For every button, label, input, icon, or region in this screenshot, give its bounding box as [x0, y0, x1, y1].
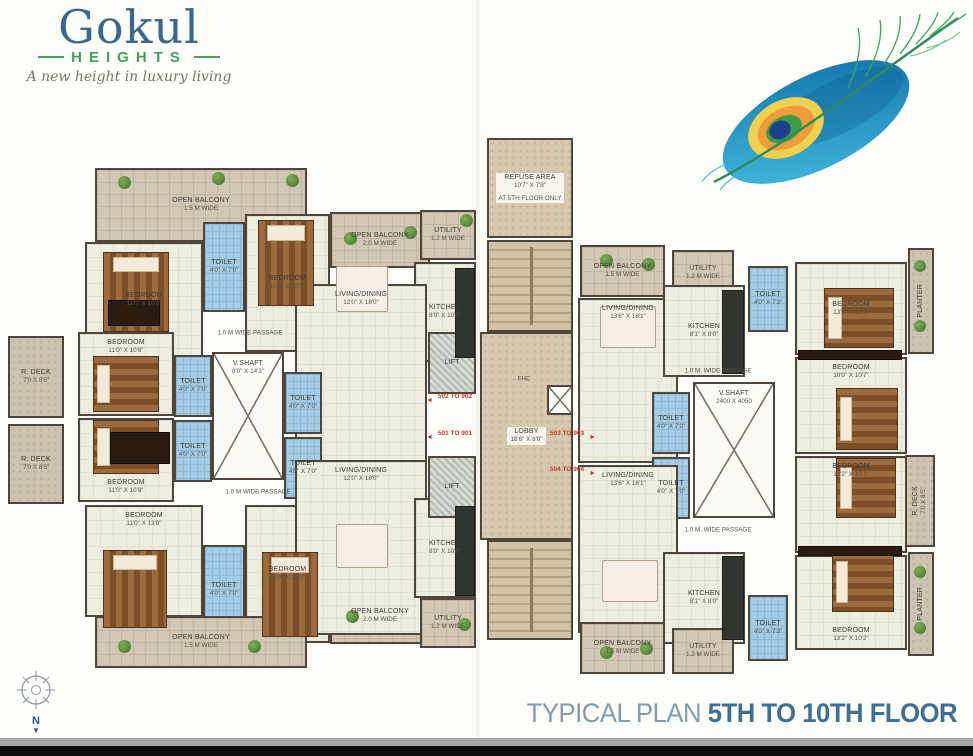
floor-plan-page: OPEN BALCONY1.5 M WIDEBEDROOM11'0" X 10'… [0, 0, 973, 756]
room-dimensions: 4'0" X 7'0" [179, 452, 208, 459]
room-label: TOILET4'0" X 7'0" [179, 443, 208, 459]
room-label: UTILITY1.2 M WIDE [431, 615, 465, 631]
room-v-shaft: V.SHAFT8'0" X 14'3" [212, 352, 284, 480]
room-name: OPEN BALCONY [172, 197, 230, 205]
room-name: BEDROOM [832, 301, 870, 309]
room-name: TOILET [657, 415, 686, 423]
room-dimensions: 11'0" X 10'0" [125, 301, 163, 308]
flat-number-label: 504 TO 904 [549, 466, 585, 474]
flat-number-label: 502 TO 902 [437, 393, 473, 401]
room-toilet: TOILET4'0" X 7'3" [748, 266, 788, 332]
bed-icon [262, 552, 318, 637]
room-dimensions: 10'0" X 13'0" [269, 575, 307, 582]
room-label: OPEN BALCONY2.0 M WIDE [351, 608, 409, 624]
room-label: OPEN BALCONY1.5 M WIDE [594, 263, 652, 279]
room-name: TOILET [754, 291, 783, 299]
plan-title-regular: TYPICAL PLAN [527, 698, 701, 728]
room-name: KITCHEN [688, 590, 720, 598]
room-name: PLANTER [917, 284, 925, 318]
room-label: BEDROOM13'2" X 10'2" [832, 627, 870, 643]
room-dimensions: 1.2 M WIDE [431, 624, 465, 631]
counter-icon [722, 556, 744, 640]
room-label: KITCHEN8'1" X 8'0" [688, 323, 720, 339]
plant-icon [914, 260, 926, 272]
room-dimensions: 12'0" X 18'0" [335, 476, 387, 483]
room-label: BEDROOM10'0" X 12'0" [269, 275, 307, 291]
room-dimensions: 13'6" X 18'1" [602, 481, 654, 488]
passage-label: 1.0 M. WIDE PASSAGE [684, 368, 751, 375]
room-open-balcony: OPEN BALCONY1.5 M WIDE [580, 245, 665, 297]
plan-title: TYPICAL PLAN5TH TO 10TH FLOOR [527, 698, 957, 729]
room-toilet: TOILET4'0" X 7'0" [174, 420, 212, 482]
counter-icon [722, 290, 744, 374]
room-shaft [547, 385, 573, 415]
room-name: BEDROOM [832, 627, 870, 635]
room-name: UTILITY [431, 615, 465, 623]
passage-label: 1.0 M WIDE PASSAGE [217, 330, 282, 337]
room-r-deck: R. DECK7'0 X 8'5" [8, 336, 64, 418]
room-dimensions: 12'0" X 18'0" [335, 300, 387, 307]
room-label: PLANTER [917, 587, 925, 621]
room-r-deck: R. DECK7'0 X 8'5" [8, 424, 64, 504]
room-dimensions: 4'0" X 7'0" [289, 469, 318, 476]
room-label: UTILITY1.2 M WIDE [686, 265, 720, 281]
room-name: LIVING/DINING [602, 472, 654, 480]
room-label: KITCHEN8'1" X 8'0" [688, 590, 720, 606]
room-name: BEDROOM [125, 292, 163, 300]
room-dimensions: 1.5 M WIDE [594, 649, 652, 656]
room-dimensions: 4'0" X 7'0" [289, 404, 318, 411]
room-dimensions: 4'0" X 7'0" [179, 387, 208, 394]
divider-bar-gray [0, 738, 973, 746]
room-name: BEDROOM [107, 479, 145, 487]
plant-icon [286, 174, 299, 187]
room-label: LIVING/DINING12'0" X 18'0" [335, 291, 387, 307]
room-name: V.SHAFT [716, 390, 752, 398]
room-name: UTILITY [431, 227, 465, 235]
room-name: TOILET [289, 395, 318, 403]
room-name: TOILET [179, 443, 208, 451]
room-dimensions: 4'0" X 7'0" [657, 424, 686, 431]
divider-bar-black [0, 746, 973, 756]
room-dimensions: 1.5 M WIDE [172, 643, 230, 650]
room-name: R. DECK [21, 456, 51, 464]
room-name: LIVING/DINING [602, 305, 654, 313]
room-label: LIFT [444, 359, 459, 367]
flat-number-label: 503 TO 903 [549, 430, 585, 438]
room-label: UTILITY1.2 M WIDE [431, 227, 465, 243]
room-label: BEDROOM13'0" X 10'0" [832, 301, 870, 317]
room-label: TOILET4'0" X 7'0" [179, 378, 208, 394]
room-dimensions: 8'0" X 10'0" [429, 549, 461, 556]
room-label: BEDROOM11'0" X 13'0" [125, 512, 163, 528]
room-name: REFUSE AREA [499, 174, 562, 182]
plant-icon [212, 172, 225, 185]
bed-icon [824, 288, 894, 348]
room-dimensions: 7'0 X 8'5" [21, 378, 51, 385]
room-dimensions: 1.5 M WIDE [172, 206, 230, 213]
plant-icon [248, 640, 261, 653]
room-name: BEDROOM [832, 364, 870, 372]
flat-number-label: 501 TO 901 [437, 430, 473, 438]
room-label: UTILITY1.2 M WIDE [686, 643, 720, 659]
room-name: TOILET [754, 620, 783, 628]
room-name: PLANTER [917, 587, 925, 621]
room-dimensions: 4'0" X 7'0" [210, 268, 239, 275]
room-label: BEDROOM11'0" X 10'8" [107, 339, 145, 355]
wardrobe-icon [798, 350, 902, 360]
room-name: KITCHEN [688, 323, 720, 331]
plant-icon [118, 176, 131, 189]
room-label: OPEN BALCONY1.5 M WIDE [172, 197, 230, 213]
room-dimensions: 10'7" X 7'8" [499, 183, 562, 190]
room-dimensions: 7'0 X 8'5" [921, 486, 928, 516]
peacock-feather-icon [698, 4, 970, 192]
room-name: R. DECK [912, 486, 920, 516]
table-icon [336, 524, 388, 568]
room-name: R. DECK [21, 369, 51, 377]
room-name: OPEN BALCONY [594, 640, 652, 648]
bed-icon [258, 220, 314, 306]
room-label: OPEN BALCONY1.5 M WIDE [172, 634, 230, 650]
room-label: R. DECK7'0 X 8'5" [912, 486, 928, 516]
room-name: LIFT [444, 483, 459, 491]
room-label: BEDROOM11'0" X 10'0" [125, 292, 163, 308]
room-dimensions: 2.0 M WIDE [351, 617, 409, 624]
room-label: OPEN BALCONY1.5 M WIDE [594, 640, 652, 656]
room-label: V.SHAFT2400 X 4050 [713, 389, 755, 407]
room-name: BEDROOM [832, 463, 870, 471]
plant-icon [914, 566, 926, 578]
room-toilet: TOILET4'0" X 7'0" [203, 222, 245, 312]
room-dimensions: 8'1" X 8'0" [688, 332, 720, 339]
bed-icon [836, 388, 898, 450]
room-dimensions: 8'0" X 10'0" [429, 313, 461, 320]
room-dimensions: 11'0" X 13'0" [125, 521, 163, 528]
compass-icon [16, 670, 56, 710]
room-name: TOILET [289, 460, 318, 468]
room-label: TOILET4'0" X 7'0" [289, 395, 318, 411]
table-icon [602, 560, 658, 602]
room-label: R. DECK7'0 X 8'5" [21, 369, 51, 385]
brand-logo: Gokul HEIGHTS A new height in luxury liv… [18, 2, 240, 85]
room-label: BEDROOM11'0" X 10'8" [107, 479, 145, 495]
room-toilet: TOILET4'0" X 7'3" [748, 595, 788, 661]
brand-name: Gokul [18, 2, 240, 53]
room-label: OPEN BALCONY2.0 M WIDE [351, 232, 409, 248]
room-name: UTILITY [686, 643, 720, 651]
room-dimensions: 1.2 M WIDE [431, 236, 465, 243]
bed-icon [832, 552, 894, 612]
room-dimensions: 13'2" X 10'1" [832, 472, 870, 479]
room-label: BEDROOM13'2" X 10'1" [832, 463, 870, 479]
room-toilet: TOILET4'0" X 7'0" [284, 372, 322, 434]
room-dimensions: 4'0" X 7'3" [754, 300, 783, 307]
room-stairs [487, 540, 573, 640]
room-name: UTILITY [686, 265, 720, 273]
room-label: LOBBY18'6" X 8'0" [507, 427, 545, 445]
passage-label: 1.0 M. WIDE PASSAGE [684, 527, 751, 534]
room-dimensions: 11'0" X 10'8" [107, 348, 145, 355]
room-dimensions: 4'0" X 7'0" [657, 489, 686, 496]
passage-label: 1.0 M WIDE PASSAGE [225, 489, 290, 496]
room-name: OPEN BALCONY [172, 634, 230, 642]
passage-label: FHC [518, 376, 531, 383]
room-dimensions: 10'0" X 10'7" [832, 373, 870, 380]
logo-rule-right [194, 56, 220, 58]
room-label: LIVING/DINING12'0" X 18'0" [335, 467, 387, 483]
room-name: LIVING/DINING [335, 291, 387, 299]
room-label: R. DECK7'0 X 8'5" [21, 456, 51, 472]
room-name: BEDROOM [125, 512, 163, 520]
room-name: OPEN BALCONY [594, 263, 652, 271]
room-dimensions: 4'0" X 7'0" [210, 591, 239, 598]
room-name: LIVING/DINING [335, 467, 387, 475]
room-label: TOILET4'0" X 7'3" [754, 620, 783, 636]
room-refuse-area: REFUSE AREA10'7" X 7'8"AT 5TH FLOOR ONLY [487, 138, 573, 238]
room-dimensions: 13'0" X 10'0" [832, 310, 870, 317]
plant-icon [460, 214, 473, 227]
room-name: V.SHAFT [232, 360, 264, 368]
room-name: OPEN BALCONY [351, 608, 409, 616]
room-dimensions: 1.5 M WIDE [594, 272, 652, 279]
room-dimensions: 8'1" X 8'0" [688, 599, 720, 606]
room-name: TOILET [657, 480, 686, 488]
compass-rose: N ▼ [12, 670, 60, 735]
brand-sub: HEIGHTS [71, 49, 187, 66]
room-dimensions: 18'6" X 8'0" [510, 437, 542, 444]
room-r-deck: R. DECK7'0 X 8'5" [905, 455, 935, 547]
bed-icon [103, 550, 167, 628]
plant-icon [914, 622, 926, 634]
room-dimensions: 13'2" X 10'2" [832, 636, 870, 643]
room-name: BEDROOM [269, 566, 307, 574]
room-label: TOILET4'0" X 7'0" [289, 460, 318, 476]
room-dimensions: 13'6" X 18'1" [602, 314, 654, 321]
room-label: TOILET4'0" X 7'0" [210, 582, 239, 598]
bed-icon [93, 356, 159, 412]
brand-tagline: A new height in luxury living [18, 69, 240, 85]
room-toilet: TOILET4'0" X 7'0" [174, 355, 212, 417]
logo-rule-left [38, 56, 64, 58]
room-name: BEDROOM [107, 339, 145, 347]
plan-title-bold: 5TH TO 10TH FLOOR [708, 698, 957, 728]
plant-icon [914, 320, 926, 332]
room-dimensions: 10'0" X 12'0" [269, 284, 307, 291]
compass-north-arrow: ▼ [12, 727, 60, 735]
room-dimensions: 2.0 M WIDE [351, 241, 409, 248]
room-dimensions: AT 5TH FLOOR ONLY [499, 196, 562, 203]
room-label: TOILET4'0" X 7'0" [210, 259, 239, 275]
room-name: LOBBY [510, 428, 542, 436]
room-label: V.SHAFT8'0" X 14'3" [229, 359, 267, 377]
room-label: KITCHEN8'0" X 10'0" [429, 540, 461, 556]
room-dimensions: 2400 X 4050 [716, 399, 752, 406]
room-name: OPEN BALCONY [351, 232, 409, 240]
room-label: TOILET4'0" X 7'3" [754, 291, 783, 307]
room-label: TOILET4'0" X 7'0" [657, 480, 686, 496]
wardrobe-icon [110, 432, 170, 464]
room-name: TOILET [210, 259, 239, 267]
room-dimensions: 7'0 X 8'5" [21, 465, 51, 472]
plant-icon [118, 640, 131, 653]
room-dimensions: 4'0" X 7'3" [754, 629, 783, 636]
room-toilet: TOILET4'0" X 7'0" [652, 392, 690, 454]
room-dimensions: 11'0" X 10'8" [107, 488, 145, 495]
room-label: BEDROOM10'0" X 13'0" [269, 566, 307, 582]
room-label: LIVING/DINING13'6" X 18'1" [602, 472, 654, 488]
room-name: BEDROOM [269, 275, 307, 283]
room-name: TOILET [179, 378, 208, 386]
room-name: KITCHEN [429, 540, 461, 548]
room-name: LIFT [444, 359, 459, 367]
room-label: TOILET4'0" X 7'0" [657, 415, 686, 431]
room-name: KITCHEN [429, 304, 461, 312]
room-label: KITCHEN8'0" X 10'0" [429, 304, 461, 320]
brand-sub-row: HEIGHTS [18, 49, 240, 66]
room-v-shaft: V.SHAFT2400 X 4050 [693, 382, 775, 518]
room-stairs [487, 240, 573, 332]
room-name: TOILET [210, 582, 239, 590]
room-dimensions: 1.2 M WIDE [686, 652, 720, 659]
room-label: BEDROOM10'0" X 10'7" [832, 364, 870, 380]
room-dimensions: 1.2 M WIDE [686, 274, 720, 281]
room-label: PLANTER [917, 284, 925, 318]
room-label: LIVING/DINING13'6" X 18'1" [602, 305, 654, 321]
room-dimensions: 8'0" X 14'3" [232, 369, 264, 376]
room-label: REFUSE AREA10'7" X 7'8"AT 5TH FLOOR ONLY [496, 173, 565, 204]
wardrobe-icon [798, 546, 902, 556]
room-label: LIFT [444, 483, 459, 491]
